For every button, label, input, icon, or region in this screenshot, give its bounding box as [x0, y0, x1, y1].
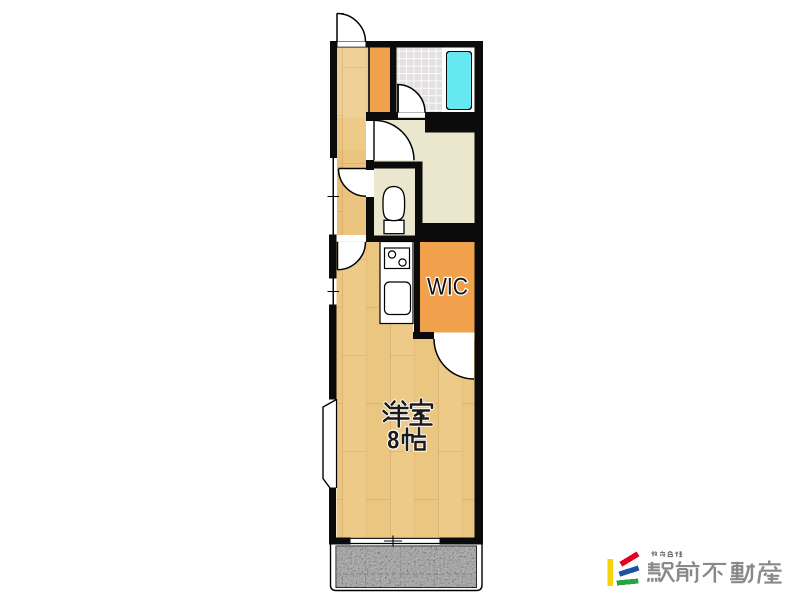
svg-text:WIC: WIC [427, 274, 468, 301]
svg-text:8: 8 [387, 427, 399, 455]
